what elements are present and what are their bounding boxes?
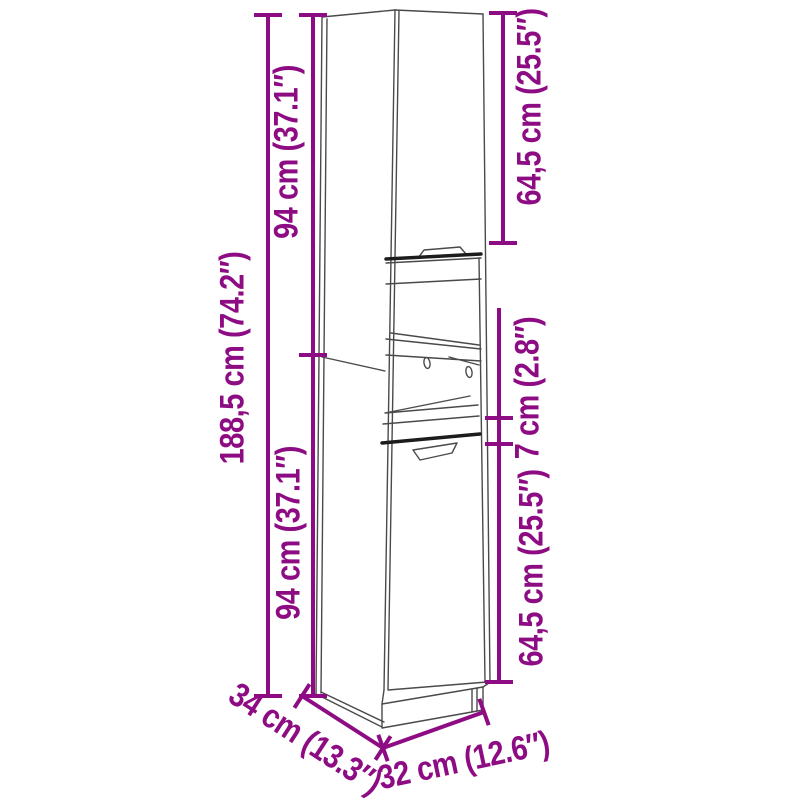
cabinet-dark-edges bbox=[382, 254, 481, 443]
dim-label-lower-door-height: 64,5 cm (25.5″) bbox=[513, 469, 552, 666]
diagram-canvas bbox=[0, 0, 800, 800]
dim-label-middle-band-height: 7 cm (2.8″) bbox=[509, 317, 548, 459]
lower-door-handle bbox=[413, 443, 457, 460]
side-seam-line bbox=[322, 357, 385, 371]
plinth bbox=[382, 687, 483, 728]
pin-hole bbox=[423, 357, 431, 369]
pin-hole bbox=[465, 366, 473, 378]
dim-label-lower-section-height: 94 cm (37.1″) bbox=[270, 446, 309, 620]
dim-label-upper-section-height: 94 cm (37.1″) bbox=[268, 65, 307, 239]
shelf bbox=[386, 333, 481, 365]
dimension-diagram: 94 cm (37.1″) 188,5 cm (74.2″) 94 cm (37… bbox=[0, 0, 800, 800]
dim-label-upper-door-height: 64,5 cm (25.5″) bbox=[511, 8, 550, 205]
dim-label-total-height: 188,5 cm (74.2″) bbox=[214, 252, 253, 465]
cabinet-wireframe bbox=[316, 10, 490, 728]
lower-door-top-edge bbox=[382, 434, 480, 443]
